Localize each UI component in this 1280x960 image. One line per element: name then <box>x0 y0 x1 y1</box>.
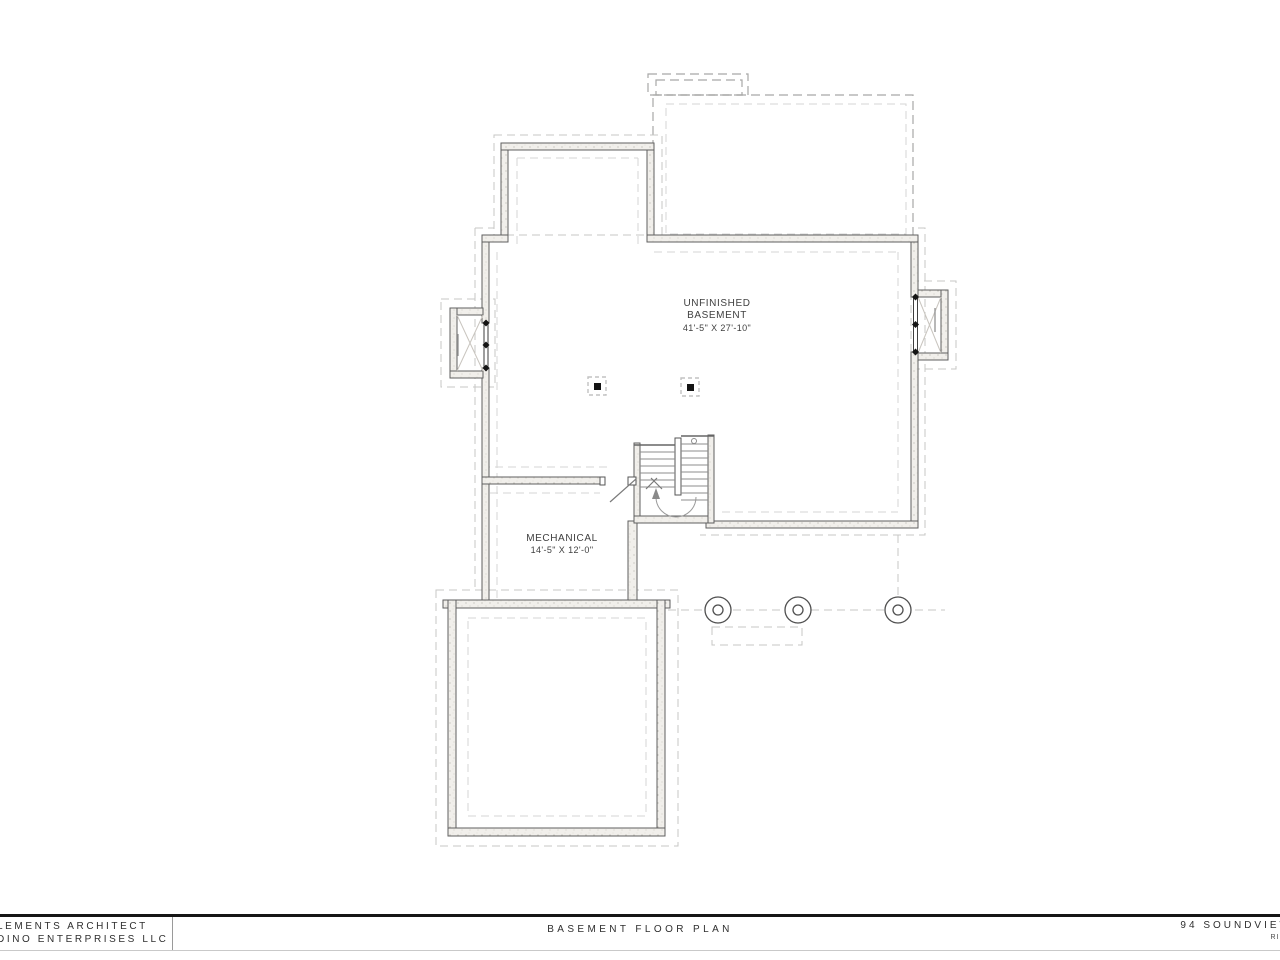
pier-column <box>885 597 911 623</box>
mechanical-door <box>600 477 636 502</box>
stairs <box>634 435 714 523</box>
sheet: UNFINISHED BASEMENT 41'-5" X 27'-10" MEC… <box>0 0 1280 960</box>
pier-column <box>785 597 811 623</box>
unfinished-basement-label-line1: UNFINISHED <box>683 298 750 309</box>
overhead-deck-dashed-outline <box>648 74 913 240</box>
left-window-well <box>450 308 483 378</box>
left-basement-window <box>482 319 489 371</box>
right-window-well <box>918 290 948 360</box>
stair-direction-arrowhead <box>652 488 660 499</box>
right-basement-window <box>912 293 919 355</box>
unfinished-basement-label-line2: BASEMENT <box>687 310 747 321</box>
unfinished-basement-dimensions: 41'-5" X 27'-10" <box>683 323 751 333</box>
mechanical-room-label: MECHANICAL <box>526 533 598 544</box>
pier-column <box>705 597 731 623</box>
mechanical-room-dimensions: 14'-5" X 12'-0" <box>531 545 594 555</box>
door-leaf <box>610 479 636 502</box>
post-footings <box>588 377 699 396</box>
post-footing <box>681 378 699 396</box>
floor-plan-drawing: UNFINISHED BASEMENT 41'-5" X 27'-10" MEC… <box>0 0 1280 960</box>
post-footing <box>588 377 606 395</box>
